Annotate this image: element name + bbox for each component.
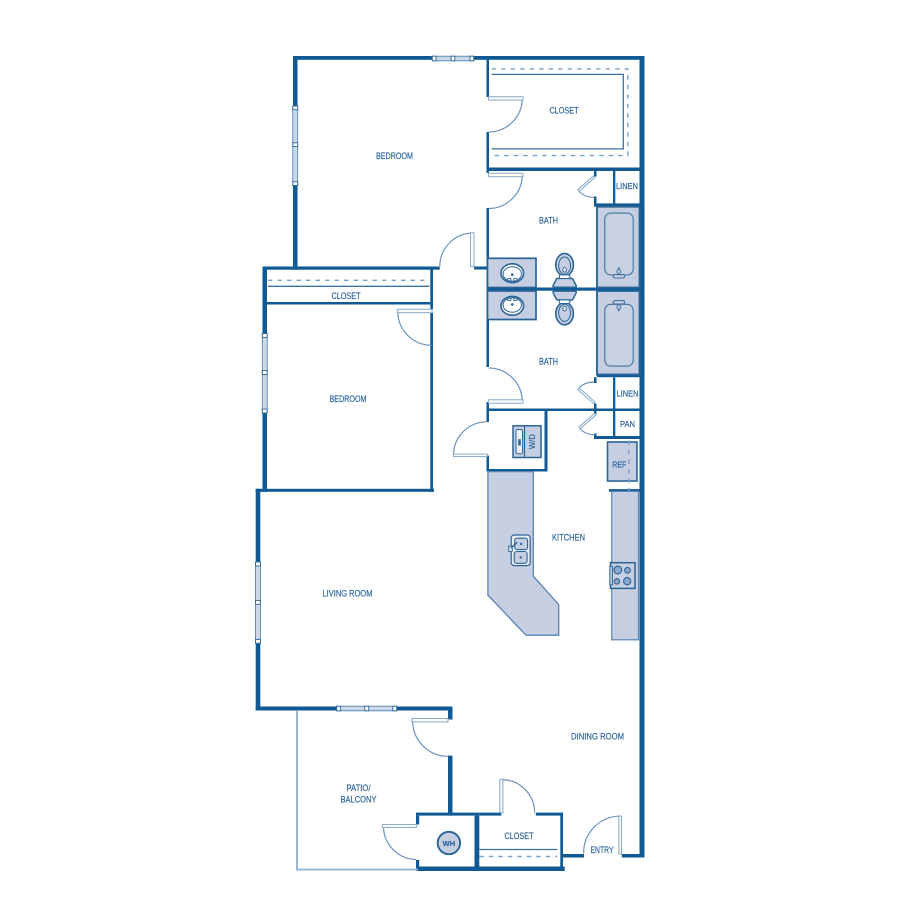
svg-text:BEDROOM: BEDROOM bbox=[330, 394, 367, 404]
svg-text:W/D: W/D bbox=[528, 434, 537, 449]
svg-text:BATH: BATH bbox=[539, 357, 558, 367]
svg-text:ENTRY: ENTRY bbox=[591, 845, 614, 855]
svg-text:LINEN: LINEN bbox=[617, 389, 639, 399]
svg-text:DINING ROOM: DINING ROOM bbox=[571, 732, 624, 742]
svg-text:BALCONY: BALCONY bbox=[341, 794, 377, 804]
svg-text:PATIO/: PATIO/ bbox=[347, 783, 371, 793]
svg-text:WH: WH bbox=[443, 839, 456, 848]
svg-text:REF: REF bbox=[612, 460, 626, 470]
svg-text:CLOSET: CLOSET bbox=[505, 831, 534, 841]
svg-text:LIVING ROOM: LIVING ROOM bbox=[323, 589, 373, 599]
svg-text:LINEN: LINEN bbox=[616, 181, 638, 191]
svg-text:BATH: BATH bbox=[539, 216, 558, 226]
svg-text:KITCHEN: KITCHEN bbox=[552, 533, 585, 543]
svg-text:PAN: PAN bbox=[620, 419, 635, 429]
svg-text:CLOSET: CLOSET bbox=[550, 106, 579, 116]
svg-text:BEDROOM: BEDROOM bbox=[376, 151, 413, 161]
svg-text:CLOSET: CLOSET bbox=[332, 291, 361, 301]
